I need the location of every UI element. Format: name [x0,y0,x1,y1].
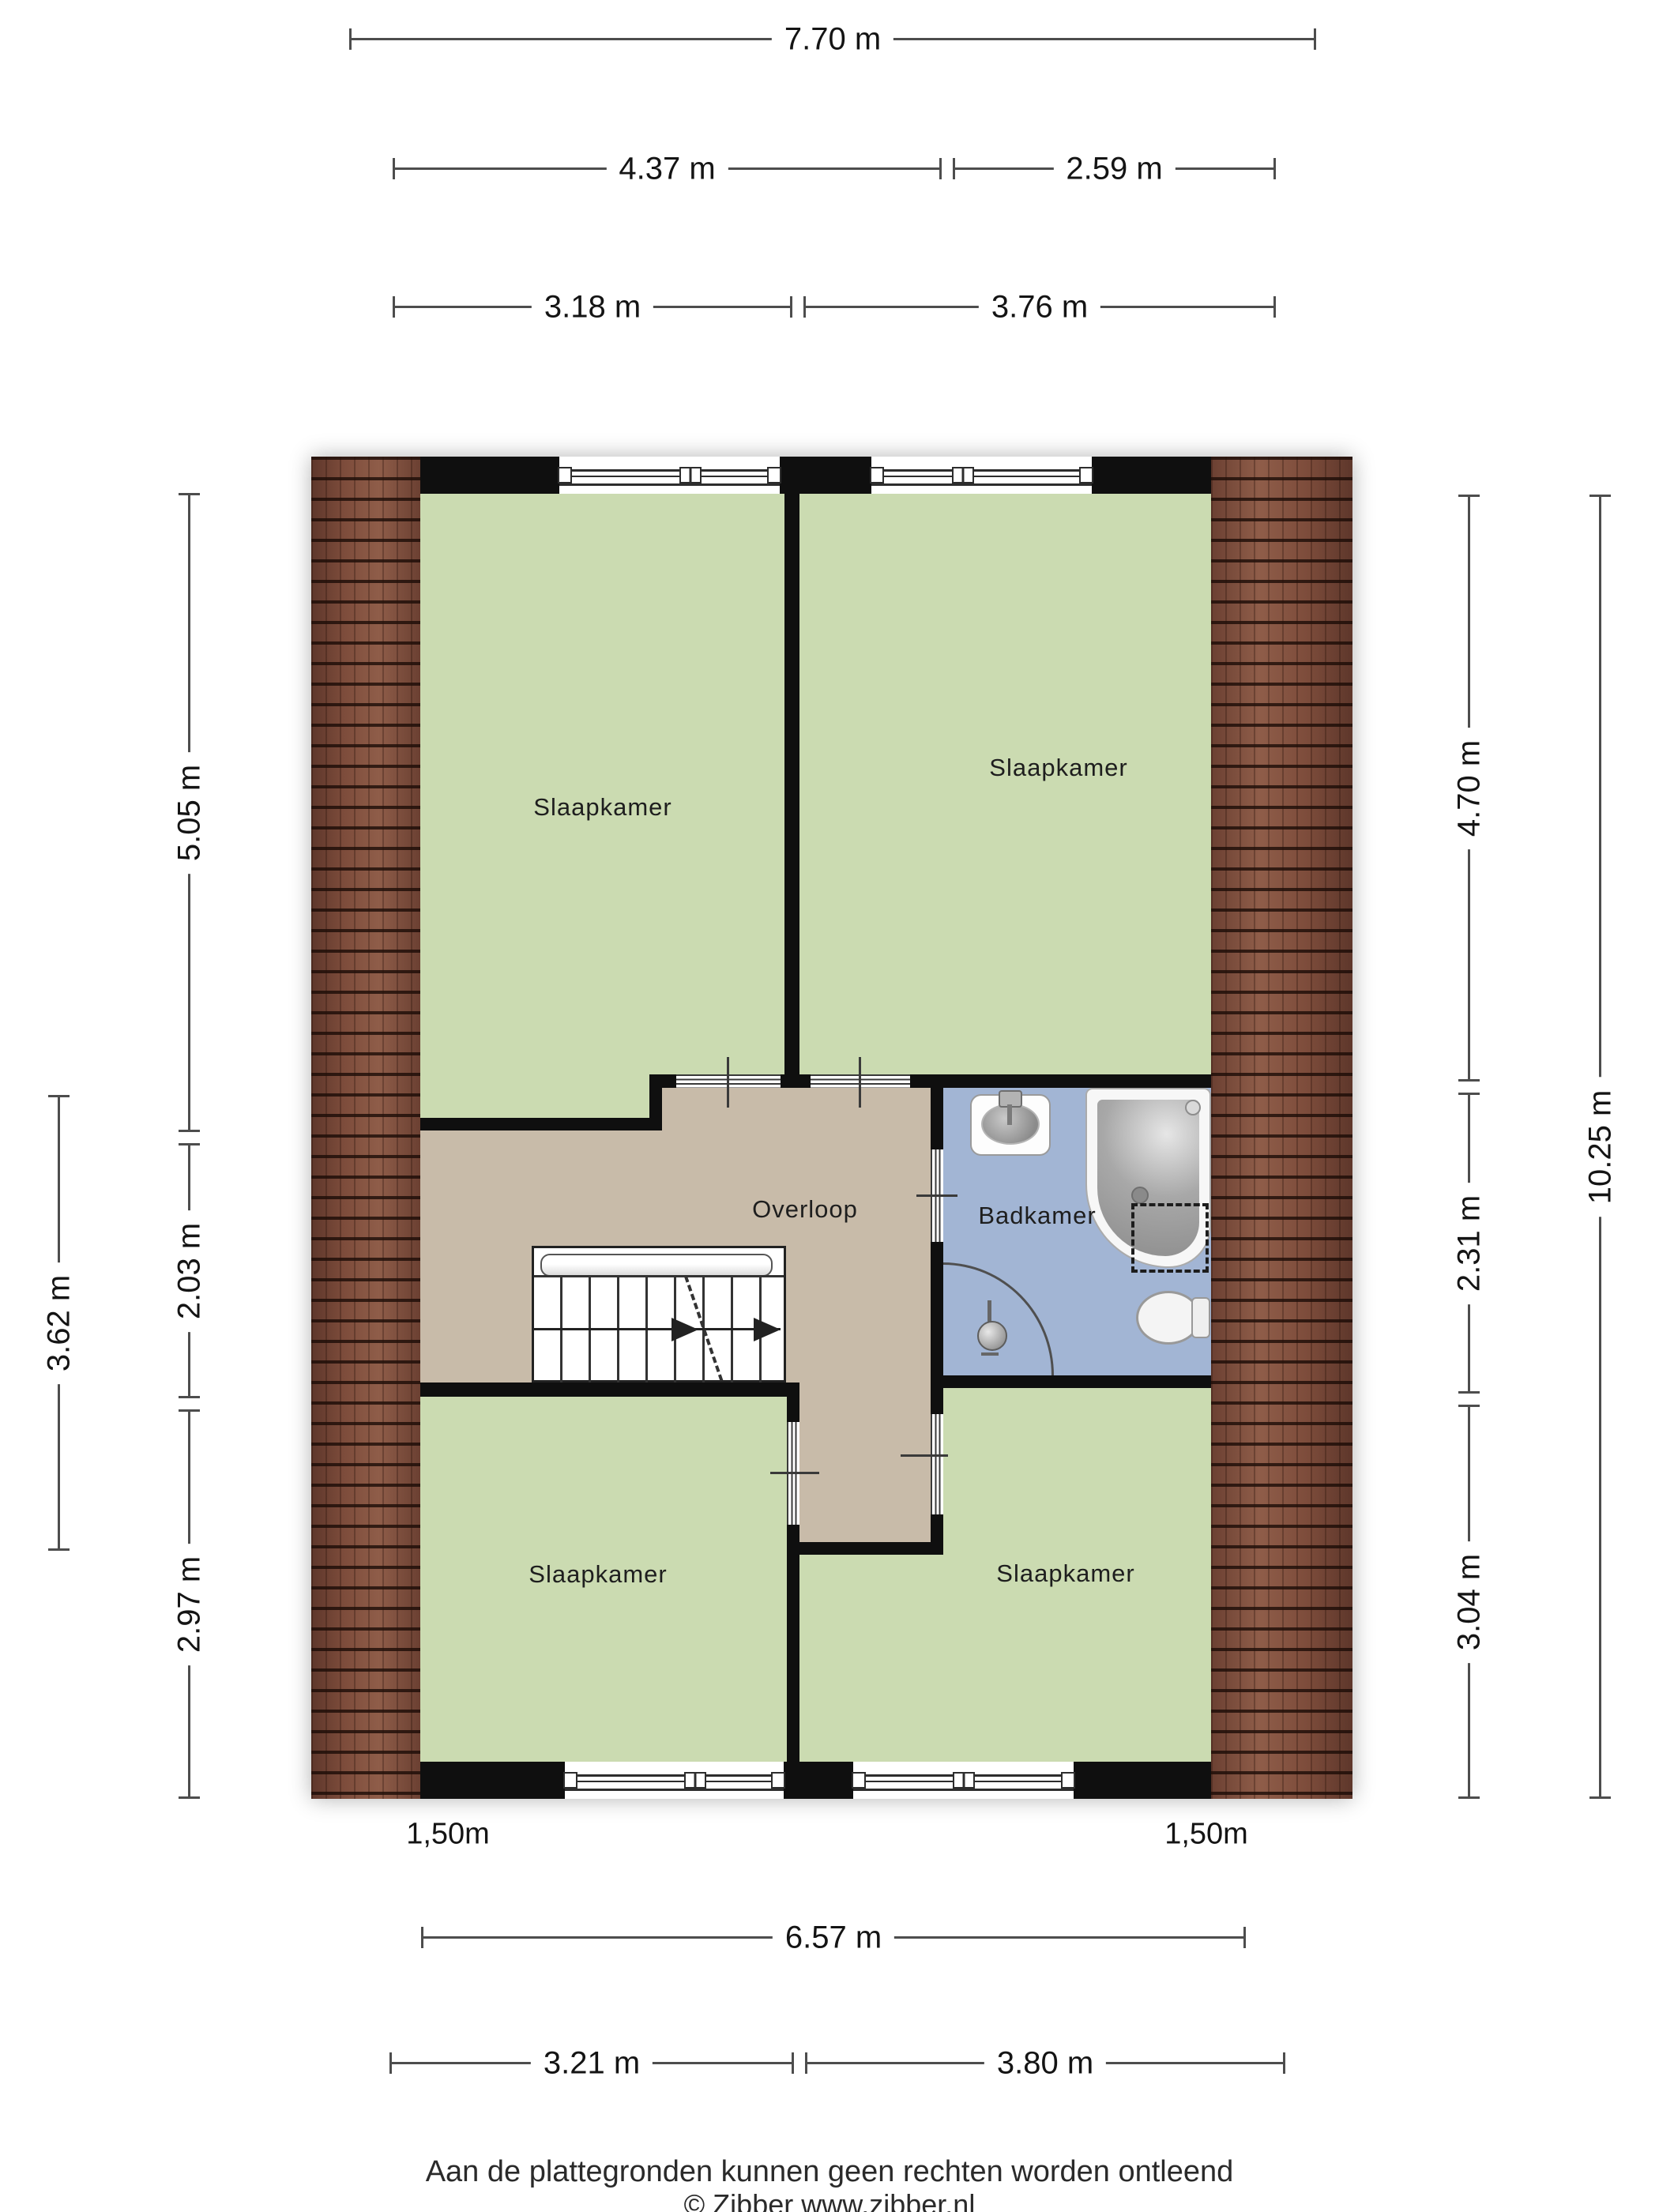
dim-left-mid: 2.03 m [188,1143,190,1398]
wall-divider-top-bedrooms [784,494,799,1074]
dim-top-right: 2.59 m [953,167,1276,170]
label-bedroom-bottom-left: Slaapkamer [529,1560,667,1589]
door-tick [901,1454,948,1457]
wall-bottom-c [1074,1762,1211,1799]
dim-left-outer-label: 3.62 m [41,1262,77,1383]
wall-bedroom-tl-bottom [420,1118,662,1130]
bathtub-step-outline [1131,1203,1209,1273]
wall-doorband-right-bathroom-top [910,1074,1211,1088]
window-mullion [952,467,974,483]
dim-bottom-right-label: 3.80 m [984,2045,1106,2081]
window-glass [559,469,780,486]
window-frame-cap [852,1772,866,1789]
window-glass [871,469,1092,486]
roof-strip-left [311,457,420,1799]
sink-faucet-stem-icon [1007,1104,1012,1125]
shower-head-icon [977,1321,1007,1351]
dim-right-top-label: 4.70 m [1451,727,1487,848]
wall-top-b [780,457,871,494]
window-top-left [559,457,780,494]
window-frame-cap [870,467,884,483]
label-landing: Overloop [752,1195,858,1224]
dim-right-mid-label: 2.31 m [1451,1182,1487,1303]
wall-corridor-left-b [787,1525,799,1762]
footer-credit: © Zibber www.zibber.nl [0,2188,1659,2212]
window-bottom-left [565,1762,784,1799]
dim-right-outer-label: 10.25 m [1582,1077,1618,1217]
room-landing-upper [662,1088,931,1130]
wall-top-a [420,457,559,494]
window-top-right [871,457,1092,494]
door-tick [770,1472,819,1474]
window-frame-cap [771,1772,785,1789]
staircase-landing [540,1254,773,1277]
dim-right-top: 4.70 m [1468,495,1470,1082]
dim-bottom-total: 6.57 m [421,1936,1246,1939]
footer-disclaimer: Aan de plattegronden kunnen geen rechten… [0,2155,1659,2189]
staircase-direction-line [534,1328,781,1330]
roof-strip-right [1211,457,1352,1799]
window-frame-cap [767,467,781,483]
window-frame-cap [1079,467,1093,483]
dim-right-outer: 10.25 m [1599,495,1601,1799]
dim-left-bottom-label: 2.97 m [171,1543,207,1665]
dim-top-total: 7.70 m [349,38,1316,40]
dim-bottom-total-label: 6.57 m [773,1920,894,1955]
dim-right-bottom-label: 3.04 m [1451,1540,1487,1662]
label-bedroom-bottom-right: Slaapkamer [996,1559,1134,1588]
label-bedroom-top-left: Slaapkamer [533,793,671,822]
window-bottom-right [853,1762,1074,1799]
wall-top-c [1092,457,1211,494]
wall-bottom-a [420,1762,565,1799]
wall-corridor-right-a [931,1388,943,1414]
dim-bottom-left-label: 3.21 m [531,2045,653,2081]
dim-bottom-right: 3.80 m [805,2062,1285,2064]
dim-upper-right-label: 3.76 m [979,289,1100,325]
toilet-tank-icon [1191,1297,1210,1338]
door-tick [859,1057,861,1108]
headroom-label-left: 1,50m [406,1818,490,1852]
label-bathroom: Badkamer [978,1202,1096,1230]
room-landing-corridor [799,1382,931,1542]
bathtub-faucet-icon [1185,1100,1201,1115]
dim-right-bottom: 3.04 m [1468,1405,1470,1799]
dim-upper-right: 3.76 m [803,306,1276,308]
dim-left-top: 5.05 m [188,493,190,1132]
dim-bottom-left: 3.21 m [389,2062,794,2064]
wall-under-stairs [420,1382,799,1397]
wall-bathroom-left-b [931,1242,943,1375]
wall-corridor-bottom [799,1542,943,1555]
dim-left-outer: 3.62 m [58,1095,60,1551]
bathtub-drain-icon [1131,1187,1149,1204]
staircase-arrow-icon [754,1318,781,1341]
dim-left-mid-label: 2.03 m [171,1209,207,1331]
room-bedroom-top-right [799,494,1211,1074]
dim-left-top-label: 5.05 m [171,751,207,873]
dim-upper-left: 3.18 m [393,306,792,308]
dim-right-mid: 2.31 m [1468,1093,1470,1394]
window-frame-cap [1061,1772,1075,1789]
shower-valve-icon [981,1352,999,1356]
wall-doorband-stub [662,1074,676,1088]
headroom-label-right: 1,50m [1164,1818,1248,1852]
door-tick [916,1194,957,1197]
dim-left-bottom: 2.97 m [188,1409,190,1799]
wall-doorband-center [781,1074,811,1088]
dim-top-total-label: 7.70 m [772,21,893,57]
door-tick [727,1057,729,1108]
window-frame-cap [558,467,572,483]
window-mullion [684,1772,706,1789]
window-mullion [679,467,702,483]
wall-bathroom-bottom [931,1375,1211,1388]
label-bedroom-top-right: Slaapkamer [989,754,1127,782]
window-glass [565,1774,784,1791]
dim-top-left-label: 4.37 m [606,151,728,186]
wall-bottom-b [784,1762,853,1799]
floorplan-canvas: 7.70 m 4.37 m 2.59 m 3.18 m 3.76 m 5.05 … [0,0,1659,2212]
door-bedroom-bottom-right [931,1414,943,1514]
wall-corridor-left-a [787,1397,799,1422]
window-frame-cap [563,1772,577,1789]
window-mullion [953,1772,975,1789]
staircase-arrow-icon [671,1318,698,1341]
dim-top-left: 4.37 m [393,167,942,170]
dim-upper-left-label: 3.18 m [532,289,653,325]
dim-top-right-label: 2.59 m [1053,151,1175,186]
wall-bathroom-left-a [931,1088,943,1149]
